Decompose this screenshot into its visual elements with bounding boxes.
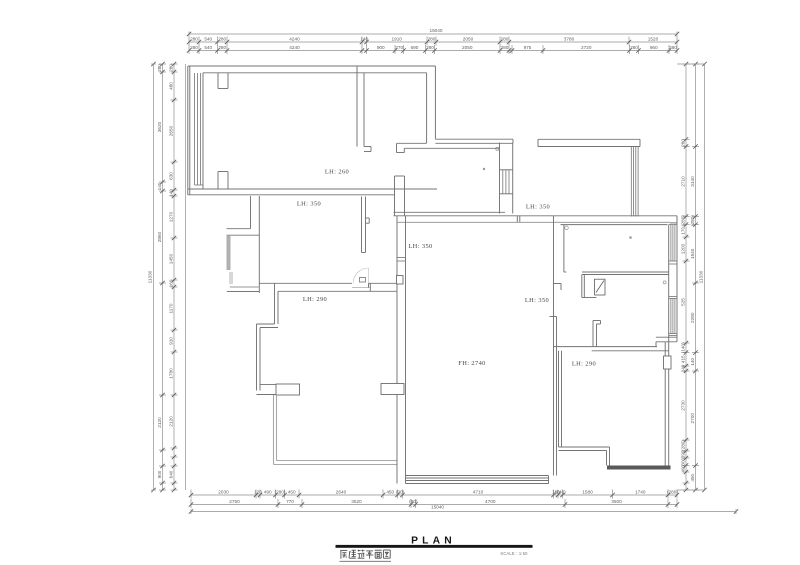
svg-text:2280: 2280: [690, 312, 695, 323]
svg-text:770: 770: [286, 499, 294, 504]
svg-text:450: 450: [690, 473, 695, 481]
svg-text:11330: 11330: [148, 270, 153, 283]
svg-text:415: 415: [680, 355, 685, 363]
svg-text:280: 280: [426, 45, 434, 50]
svg-text:11330: 11330: [699, 270, 704, 283]
svg-text:(90): (90): [409, 499, 418, 504]
svg-text:540: 540: [204, 45, 212, 50]
svg-text:280: 280: [501, 45, 509, 50]
svg-text:1520: 1520: [648, 36, 659, 41]
svg-text:640: 640: [168, 470, 173, 478]
svg-text:LH: 350: LH: 350: [525, 297, 549, 304]
svg-text:LH: 290: LH: 290: [572, 361, 596, 368]
svg-text:960: 960: [650, 45, 658, 50]
svg-text:270: 270: [395, 45, 403, 50]
svg-text:2650: 2650: [168, 125, 173, 136]
svg-text:280: 280: [218, 45, 226, 50]
svg-text:900: 900: [157, 470, 162, 478]
svg-text:280: 280: [218, 36, 226, 41]
svg-text:1170: 1170: [168, 303, 173, 313]
svg-text:140: 140: [168, 189, 173, 197]
svg-text:(280): (280): [680, 440, 685, 451]
svg-text:(280): (280): [667, 489, 678, 494]
svg-text:(280): (280): [275, 489, 286, 494]
svg-text:2710: 2710: [680, 176, 685, 187]
svg-text:15040: 15040: [429, 28, 442, 33]
svg-text:1540: 1540: [690, 248, 695, 259]
svg-text:4700: 4700: [485, 499, 496, 504]
svg-text:450: 450: [288, 489, 296, 494]
svg-text:630: 630: [168, 172, 173, 180]
svg-text:4240: 4240: [289, 45, 300, 50]
svg-text:910: 910: [168, 337, 173, 345]
svg-text:1580: 1580: [582, 489, 593, 494]
svg-text:(140): (140): [555, 489, 566, 494]
svg-text:4240: 4240: [289, 36, 300, 41]
svg-text:3600: 3600: [611, 499, 622, 504]
svg-text:2120: 2120: [157, 417, 162, 428]
svg-text:120: 120: [254, 489, 262, 494]
svg-text:140: 140: [680, 364, 685, 372]
svg-text:140: 140: [690, 357, 695, 365]
svg-text:490: 490: [680, 464, 685, 472]
svg-text:280: 280: [190, 45, 198, 50]
svg-text:LH: 350: LH: 350: [526, 204, 550, 211]
svg-text:3780: 3780: [564, 36, 575, 41]
svg-text:2730: 2730: [680, 400, 685, 411]
svg-text:280: 280: [669, 45, 677, 50]
svg-text:2050: 2050: [462, 45, 473, 50]
svg-text:140: 140: [360, 36, 368, 41]
svg-text:LH: 260: LH: 260: [325, 169, 349, 176]
svg-text:280: 280: [428, 36, 436, 41]
svg-text:170: 170: [680, 227, 685, 235]
svg-text:2640: 2640: [336, 489, 347, 494]
svg-text:3620: 3620: [157, 121, 162, 132]
svg-text:FH: 2740: FH: 2740: [458, 360, 486, 367]
svg-text:1200: 1200: [680, 243, 685, 254]
svg-text:1270: 1270: [168, 211, 173, 222]
svg-text:2720: 2720: [581, 45, 592, 50]
svg-text:LH: 350: LH: 350: [408, 243, 432, 250]
svg-text:450: 450: [386, 489, 394, 494]
svg-text:280: 280: [190, 36, 198, 41]
svg-text:900: 900: [377, 45, 385, 50]
svg-text:280: 280: [157, 64, 162, 72]
svg-text:2860: 2860: [157, 231, 162, 242]
svg-text:690: 690: [411, 45, 419, 50]
svg-text:3520: 3520: [351, 499, 362, 504]
svg-text:540: 540: [204, 36, 212, 41]
svg-text:2030: 2030: [218, 489, 229, 494]
svg-text:490: 490: [264, 489, 272, 494]
svg-text:390: 390: [680, 450, 685, 458]
svg-text:2050: 2050: [463, 36, 474, 41]
svg-text:PLAN: PLAN: [411, 535, 456, 546]
svg-text:280: 280: [680, 139, 685, 147]
svg-text:(280): (280): [690, 215, 695, 226]
svg-text:1780: 1780: [168, 368, 173, 379]
svg-text:1740: 1740: [635, 489, 646, 494]
svg-text:(280): (280): [680, 215, 685, 226]
svg-text:480: 480: [168, 82, 173, 90]
svg-text:280: 280: [168, 64, 173, 72]
svg-text:2750: 2750: [229, 499, 240, 504]
svg-text:975: 975: [524, 45, 532, 50]
svg-text:1910: 1910: [392, 36, 403, 41]
svg-text:LH: 350: LH: 350: [297, 201, 321, 208]
svg-text:525: 525: [680, 298, 685, 306]
svg-text:LH: 290: LH: 290: [303, 296, 327, 303]
svg-text:2700: 2700: [690, 413, 695, 424]
svg-text:(140): (140): [680, 342, 685, 353]
svg-text:1450: 1450: [168, 253, 173, 264]
svg-text:15040: 15040: [431, 505, 444, 510]
svg-text:140: 140: [157, 182, 162, 190]
svg-text:280: 280: [630, 45, 638, 50]
svg-text:160: 160: [168, 279, 173, 287]
svg-text:300: 300: [680, 457, 685, 465]
svg-text:2120: 2120: [168, 416, 173, 427]
svg-text:4710: 4710: [473, 489, 484, 494]
svg-text:280: 280: [501, 36, 509, 41]
svg-text:SCALE : 1:60: SCALE : 1:60: [500, 551, 528, 556]
svg-text:(90): (90): [396, 489, 405, 494]
svg-text:3140: 3140: [690, 176, 695, 187]
